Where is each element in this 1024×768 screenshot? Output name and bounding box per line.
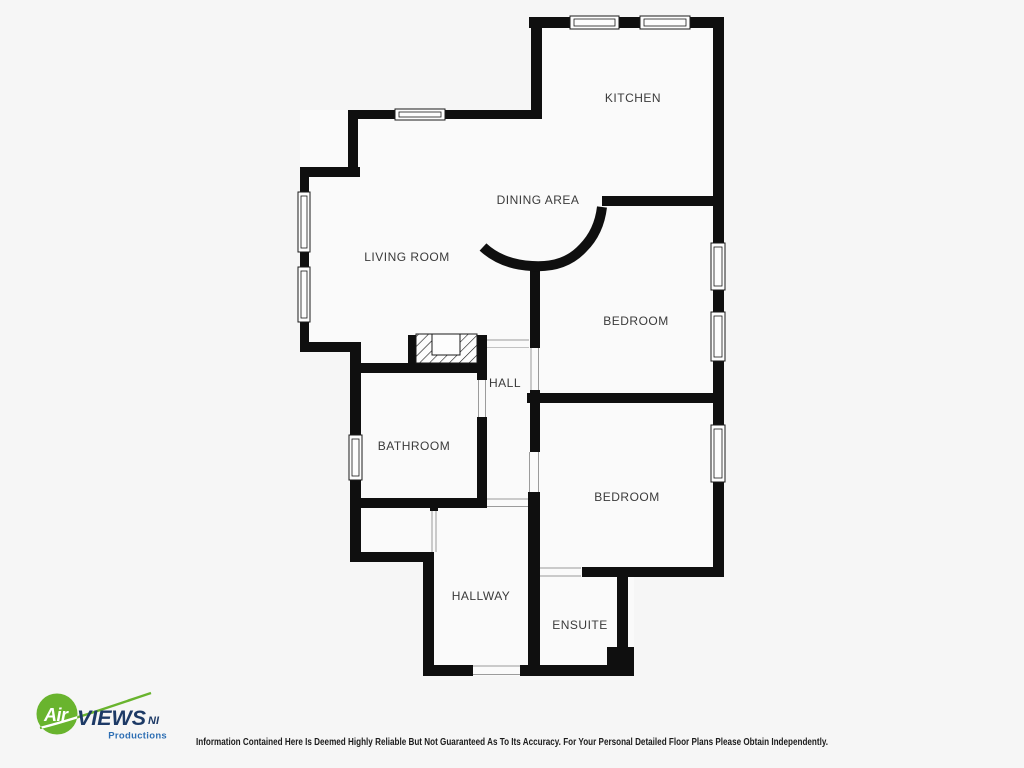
window-bedroom1-2	[711, 312, 725, 361]
window-livingroom-top	[395, 109, 445, 120]
window-bedroom1-1	[711, 243, 725, 290]
disclaimer-text: Information Contained Here Is Deemed Hig…	[196, 736, 828, 748]
wall-kitchen-top	[529, 17, 724, 28]
floorplan-svg: KITCHEN DINING AREA LIVING ROOM BEDROOM …	[0, 0, 1024, 768]
window-livingroom-left-1	[298, 192, 310, 252]
window-kitchen-1	[570, 16, 619, 29]
wall-kitchen-bedroom1	[602, 196, 724, 206]
logo-views-text: VIEWS	[77, 707, 146, 730]
wall-hallway-bottom-left	[423, 665, 473, 676]
room-label-bedroom-2: BEDROOM	[594, 490, 660, 504]
wall-bathroom-top	[350, 363, 487, 373]
wall-livingroom-step-v	[348, 110, 358, 168]
wall-ensuite-right	[617, 577, 628, 652]
room-label-living-room: LIVING ROOM	[364, 250, 450, 264]
room-label-hallway: HALLWAY	[452, 589, 511, 603]
wall-hall-right-mid	[530, 390, 540, 452]
window-bedroom2	[711, 425, 725, 482]
floorplan-page: KITCHEN DINING AREA LIVING ROOM BEDROOM …	[0, 0, 1024, 768]
window-livingroom-left-2	[298, 267, 310, 322]
wall-alcove-bottom	[350, 552, 434, 562]
room-label-bathroom: BATHROOM	[378, 439, 450, 453]
wall-bathroom-bottom	[350, 498, 487, 508]
wall-kitchen-left	[531, 17, 542, 119]
logo-ni-text: NI	[148, 715, 160, 727]
wall-livingroom-bottom	[300, 342, 358, 352]
logo-air-text: Air	[43, 705, 69, 725]
room-label-ensuite: ENSUITE	[552, 618, 608, 632]
room-label-hall: HALL	[489, 376, 521, 390]
wall-bedroom1-right	[713, 206, 724, 393]
wall-bedroom2-bottom	[582, 567, 724, 577]
wall-hallway-left	[423, 552, 434, 676]
wall-hall-right-lower	[528, 492, 540, 676]
room-label-kitchen: KITCHEN	[605, 91, 661, 105]
room-label-bedroom-1: BEDROOM	[603, 314, 669, 328]
room-label-dining-area: DINING AREA	[497, 193, 580, 207]
logo-productions-text: Productions	[108, 731, 167, 742]
fireplace	[416, 334, 477, 363]
window-kitchen-2	[640, 16, 690, 29]
wall-kitchen-right	[713, 17, 724, 206]
fireplace-hearth	[432, 334, 460, 355]
wall-alcove-stub	[430, 498, 438, 511]
window-bathroom	[349, 435, 362, 480]
wall-bedroom1-bedroom2	[527, 393, 724, 403]
wall-hall-right-upper	[530, 268, 540, 348]
wall-bathroom-right-lower	[477, 417, 487, 508]
wall-bathroom-right-upper	[477, 335, 487, 380]
